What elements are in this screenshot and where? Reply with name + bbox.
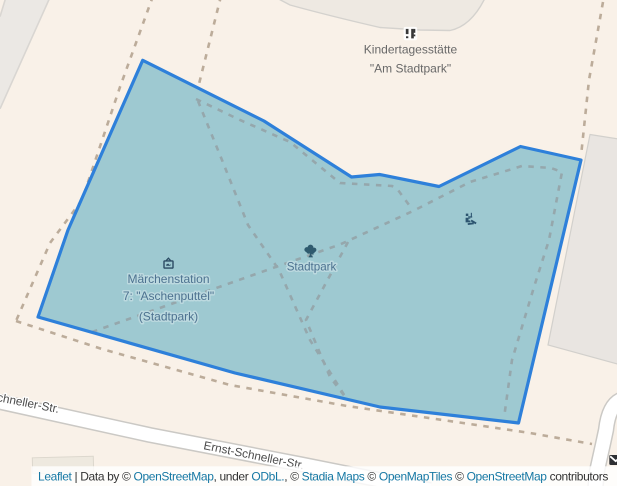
svg-text:Märchenstation: Märchenstation <box>127 272 209 286</box>
svg-text:"Am Stadtpark": "Am Stadtpark" <box>370 62 451 76</box>
svg-text:Leaflet | Data by © OpenStreet: Leaflet | Data by © OpenStreetMap, under… <box>38 470 608 484</box>
svg-text:Stadtpark: Stadtpark <box>287 261 337 274</box>
svg-text:(Stadtpark): (Stadtpark) <box>139 310 198 324</box>
svg-text:Kindertagesstätte: Kindertagesstätte <box>364 43 458 57</box>
svg-text:7: "Aschenputtel": 7: "Aschenputtel" <box>123 289 214 303</box>
